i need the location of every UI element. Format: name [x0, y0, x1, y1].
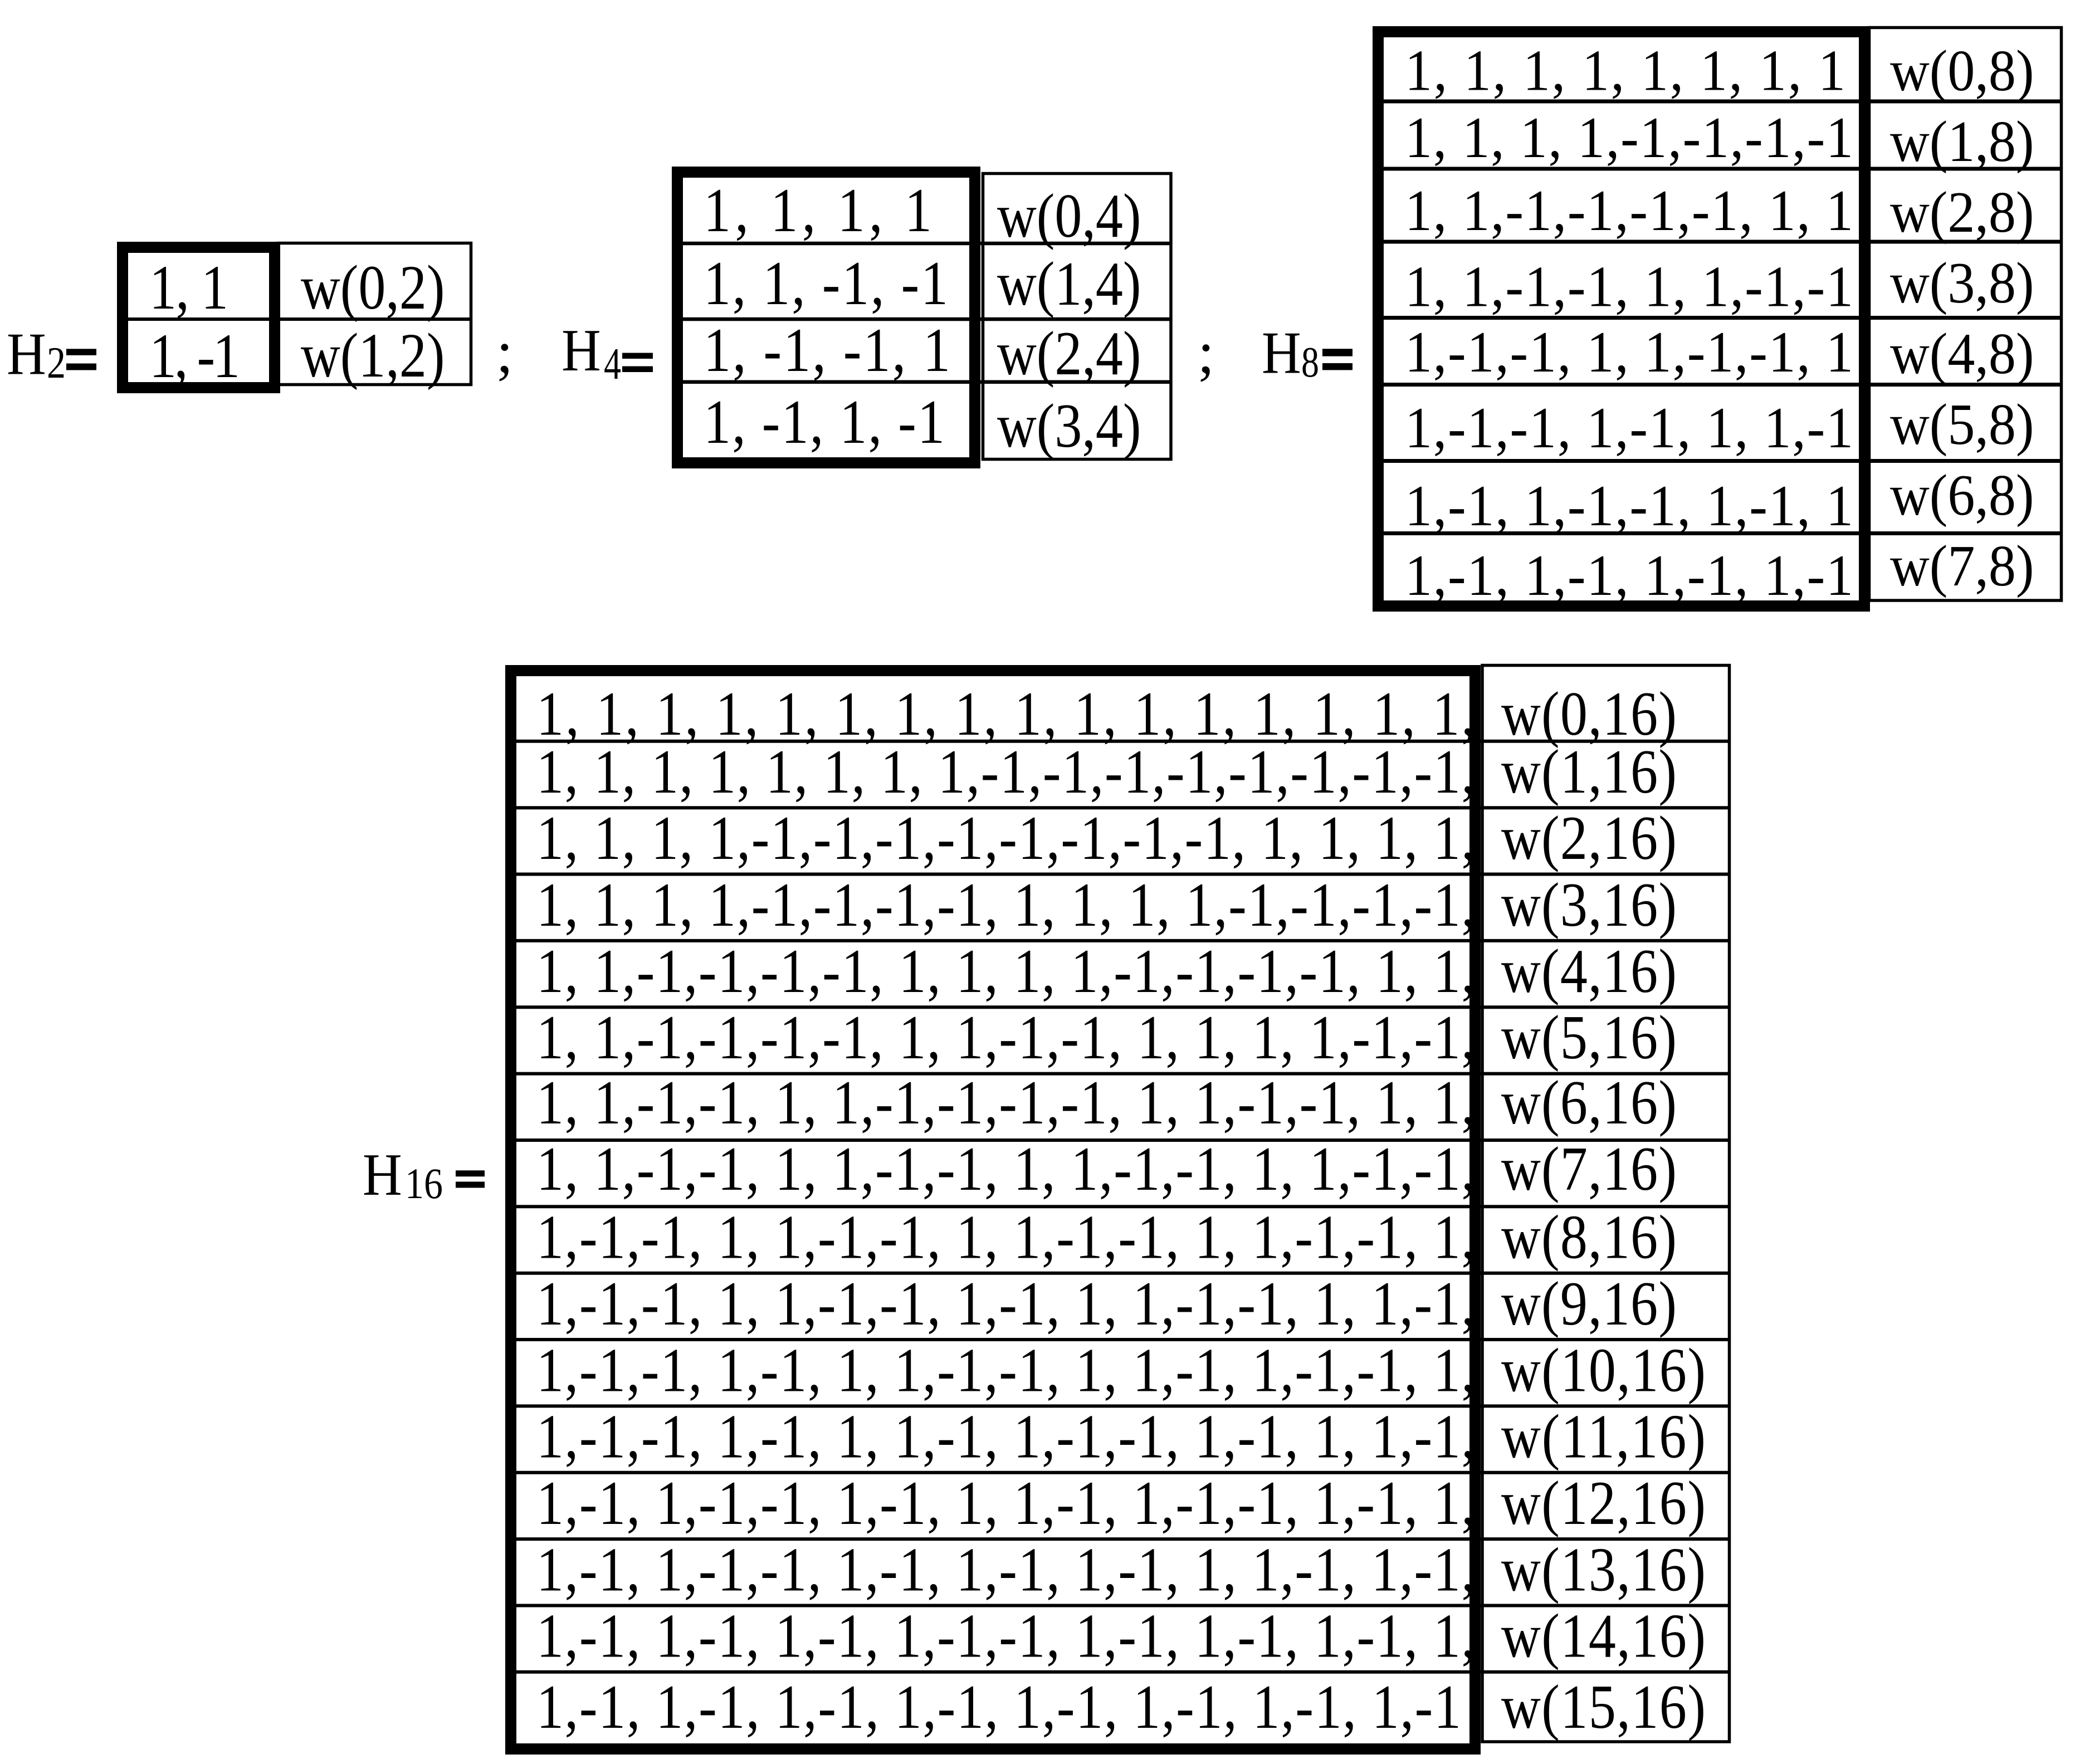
svg-text:w(4,16): w(4,16)	[1501, 936, 1677, 1006]
svg-text:H: H	[363, 1142, 402, 1208]
svg-text:w(6,8): w(6,8)	[1890, 463, 2034, 527]
svg-text:1, 1, 1, 1,-1,-1,-1,-1: 1, 1, 1, 1,-1,-1,-1,-1	[1405, 105, 1853, 170]
svg-text:w(0,8): w(0,8)	[1890, 38, 2034, 103]
svg-text:1,-1,-1, 1, 1,-1,-1, 1: 1,-1,-1, 1, 1,-1,-1, 1	[1405, 320, 1853, 384]
svg-text:w(1,8): w(1,8)	[1890, 109, 2034, 174]
svg-text:w(14,16): w(14,16)	[1501, 1601, 1706, 1670]
svg-text:w(7,16): w(7,16)	[1501, 1134, 1677, 1204]
svg-text:w(12,16): w(12,16)	[1501, 1468, 1706, 1538]
svg-text:1,-1, 1,-1, 1,-1, 1,-1, 1,-1,: 1,-1, 1,-1, 1,-1, 1,-1, 1,-1, 1,-1, 1,-1…	[536, 1672, 1461, 1742]
svg-text:w(15,16): w(15,16)	[1501, 1672, 1706, 1742]
svg-text:;: ;	[1198, 320, 1214, 386]
svg-text:H: H	[1262, 320, 1301, 386]
svg-text:1,-1, 1,-1, 1,-1, 1,-1: 1,-1, 1,-1, 1,-1, 1,-1	[1405, 543, 1853, 608]
svg-text:1, -1: 1, -1	[149, 320, 240, 390]
svg-text:w(7,8): w(7,8)	[1890, 534, 2034, 598]
svg-text:w(2,8): w(2,8)	[1890, 180, 2034, 245]
svg-text:1,-1,-1, 1,-1, 1, 1,-1: 1,-1,-1, 1,-1, 1, 1,-1	[1405, 395, 1853, 460]
svg-text:1,-1, 1,-1,-1, 1,-1, 1, 1,-1,: 1,-1, 1,-1,-1, 1,-1, 1, 1,-1, 1,-1,-1, 1…	[536, 1468, 1475, 1538]
svg-text:H: H	[7, 321, 46, 387]
svg-text:1, 1, -1, -1: 1, 1, -1, -1	[704, 248, 948, 318]
svg-text:1,-1, 1,-1,-1, 1,-1, 1: 1,-1, 1,-1,-1, 1,-1, 1	[1405, 473, 1853, 538]
svg-text:1, 1, 1, 1, 1, 1, 1, 1,-1,-1,-: 1, 1, 1, 1, 1, 1, 1, 1,-1,-1,-1,-1,-1,-1…	[536, 737, 1475, 807]
svg-text:1, 1,-1,-1,-1,-1, 1, 1,-1,-1,: 1, 1,-1,-1,-1,-1, 1, 1,-1,-1, 1, 1, 1, 1…	[536, 1003, 1475, 1072]
svg-text:w(2,16): w(2,16)	[1501, 803, 1677, 873]
svg-text:w(5,16): w(5,16)	[1501, 1003, 1677, 1072]
svg-text:1, 1,-1,-1, 1, 1,-1,-1,-1,-1,: 1, 1,-1,-1, 1, 1,-1,-1,-1,-1, 1, 1,-1,-1…	[536, 1068, 1475, 1137]
svg-text:w(4,8): w(4,8)	[1890, 321, 2034, 386]
svg-text:1,-1,-1, 1,-1, 1, 1,-1,-1, 1,: 1,-1,-1, 1,-1, 1, 1,-1,-1, 1, 1,-1, 1,-1…	[536, 1335, 1475, 1405]
svg-text:1, 1, 1, 1,-1,-1,-1,-1,-1,-1,-: 1, 1, 1, 1,-1,-1,-1,-1,-1,-1,-1,-1, 1, 1…	[536, 803, 1475, 873]
svg-text:w(2,4): w(2,4)	[997, 319, 1141, 388]
svg-text:w(1,4): w(1,4)	[997, 249, 1141, 319]
svg-text:1,-1,-1, 1, 1,-1,-1, 1,-1, 1,: 1,-1,-1, 1, 1,-1,-1, 1,-1, 1, 1,-1,-1, 1…	[536, 1269, 1475, 1338]
svg-text:w(6,16): w(6,16)	[1501, 1068, 1677, 1137]
svg-text:w(9,16): w(9,16)	[1501, 1269, 1677, 1338]
svg-text:;: ;	[496, 319, 513, 385]
svg-text:w(0,4): w(0,4)	[997, 181, 1141, 251]
svg-text:1, 1,-1,-1, 1, 1,-1,-1: 1, 1,-1,-1, 1, 1,-1,-1	[1405, 255, 1853, 319]
svg-text:w(1,2): w(1,2)	[301, 320, 445, 390]
svg-text:1, 1, 1, 1,-1,-1,-1,-1, 1, 1,: 1, 1, 1, 1,-1,-1,-1,-1, 1, 1, 1, 1,-1,-1…	[536, 870, 1475, 940]
svg-text:w(1,16): w(1,16)	[1501, 737, 1677, 807]
svg-text:1, 1,-1,-1,-1,-1, 1, 1: 1, 1,-1,-1,-1,-1, 1, 1	[1405, 178, 1853, 243]
svg-text:w(8,16): w(8,16)	[1501, 1202, 1677, 1272]
svg-text:w(5,8): w(5,8)	[1890, 392, 2034, 457]
svg-text:w(11,16): w(11,16)	[1501, 1401, 1706, 1471]
svg-text:w(13,16): w(13,16)	[1501, 1535, 1706, 1604]
svg-text:1, 1: 1, 1	[149, 252, 228, 322]
svg-text:1,-1, 1,-1,-1, 1,-1, 1,-1, 1,-: 1,-1, 1,-1,-1, 1,-1, 1,-1, 1,-1, 1, 1,-1…	[536, 1535, 1475, 1604]
svg-text:1,-1,-1, 1,-1, 1, 1,-1, 1,-1,-: 1,-1,-1, 1,-1, 1, 1,-1, 1,-1,-1, 1,-1, 1…	[536, 1401, 1475, 1471]
svg-text:w(3,16): w(3,16)	[1501, 870, 1677, 940]
svg-text:1, 1,-1,-1,-1,-1, 1, 1, 1, 1,-: 1, 1,-1,-1,-1,-1, 1, 1, 1, 1,-1,-1,-1,-1…	[536, 936, 1475, 1006]
svg-text:w(3,4): w(3,4)	[997, 391, 1141, 461]
svg-text:8: 8	[1301, 339, 1319, 387]
svg-text:w(10,16): w(10,16)	[1501, 1335, 1706, 1405]
svg-text:2: 2	[47, 339, 66, 388]
svg-text:16: 16	[405, 1159, 443, 1208]
svg-text:1,-1, 1,-1, 1,-1, 1,-1,-1, 1,-: 1,-1, 1,-1, 1,-1, 1,-1,-1, 1,-1, 1,-1, 1…	[536, 1601, 1475, 1670]
svg-text:1,-1,-1, 1, 1,-1,-1, 1, 1,-1,-: 1,-1,-1, 1, 1,-1,-1, 1, 1,-1,-1, 1, 1,-1…	[536, 1202, 1475, 1272]
svg-text:w(3,8): w(3,8)	[1890, 251, 2034, 315]
svg-text:1, 1,-1,-1, 1, 1,-1,-1, 1, 1,-: 1, 1,-1,-1, 1, 1,-1,-1, 1, 1,-1,-1, 1, 1…	[536, 1134, 1475, 1204]
svg-text:4: 4	[604, 339, 621, 389]
svg-text:H: H	[561, 317, 601, 384]
svg-text:w(0,2): w(0,2)	[301, 252, 445, 322]
